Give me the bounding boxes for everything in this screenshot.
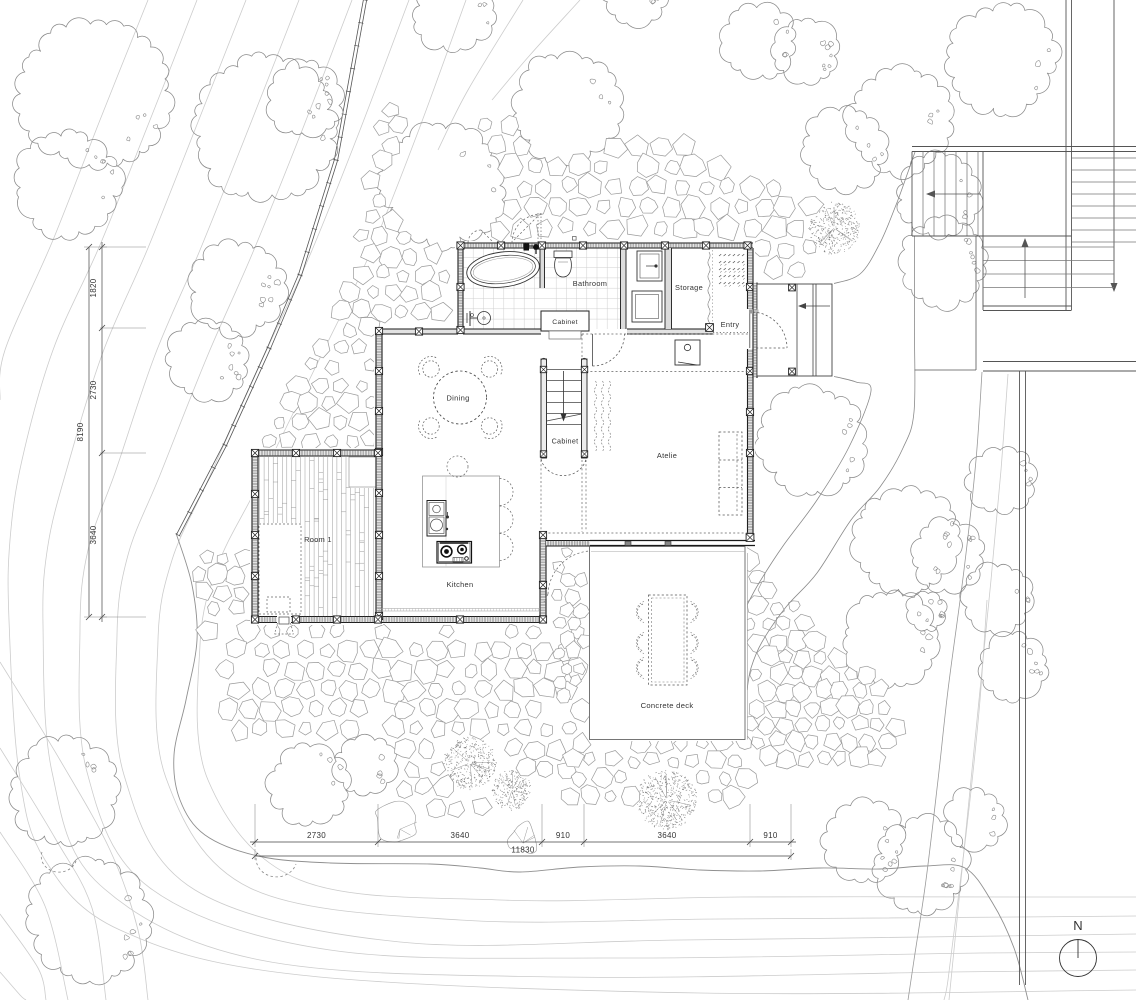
svg-text:Cabinet: Cabinet bbox=[552, 319, 578, 326]
svg-text:Entry: Entry bbox=[721, 320, 740, 329]
svg-text:Storage: Storage bbox=[675, 283, 703, 292]
svg-text:1820: 1820 bbox=[89, 278, 98, 297]
svg-text:Cabinet: Cabinet bbox=[552, 437, 579, 446]
svg-text:11830: 11830 bbox=[511, 846, 534, 855]
svg-text:8190: 8190 bbox=[76, 422, 85, 441]
svg-text:Kitchen: Kitchen bbox=[447, 580, 474, 589]
svg-text:910: 910 bbox=[556, 831, 570, 840]
svg-text:3640: 3640 bbox=[658, 831, 677, 840]
svg-text:3640: 3640 bbox=[451, 831, 470, 840]
svg-text:Room 1: Room 1 bbox=[304, 535, 332, 544]
svg-text:Atelie: Atelie bbox=[657, 451, 677, 460]
svg-text:910: 910 bbox=[763, 831, 777, 840]
svg-text:N: N bbox=[1073, 918, 1082, 933]
svg-text:Dining: Dining bbox=[446, 394, 469, 403]
svg-text:Concrete deck: Concrete deck bbox=[641, 701, 694, 710]
svg-text:Bathroom: Bathroom bbox=[573, 279, 607, 288]
svg-text:2730: 2730 bbox=[307, 831, 326, 840]
svg-text:2730: 2730 bbox=[89, 380, 98, 399]
svg-text:3640: 3640 bbox=[89, 525, 98, 544]
